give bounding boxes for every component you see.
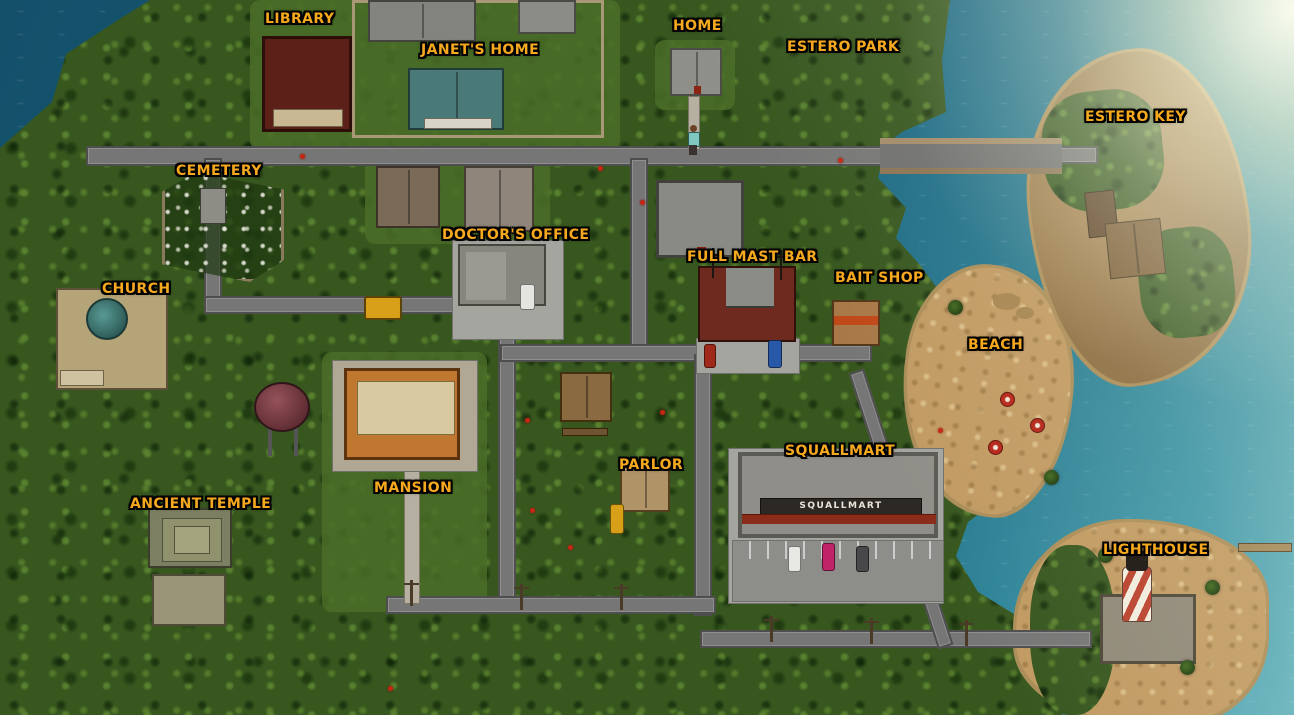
estate-north-building bbox=[368, 0, 476, 42]
lighthouse-tower[interactable] bbox=[1122, 566, 1152, 622]
telephone-pole bbox=[520, 584, 523, 610]
beach-umbrella bbox=[1030, 418, 1045, 433]
flower bbox=[838, 158, 843, 163]
estate-east-building bbox=[518, 0, 576, 34]
flower bbox=[598, 166, 603, 171]
map-label-church[interactable]: CHURCH bbox=[102, 281, 171, 297]
market-stand bbox=[560, 372, 612, 422]
islet bbox=[1016, 307, 1034, 319]
temple-terrace bbox=[152, 574, 226, 626]
map-label-parlor[interactable]: PARLOR bbox=[619, 457, 683, 473]
squallmart-building[interactable] bbox=[738, 452, 938, 538]
palm-tree bbox=[1180, 660, 1195, 675]
map-label-beach[interactable]: BEACH bbox=[968, 337, 1023, 353]
cemetery-chapel bbox=[200, 188, 226, 224]
squallmart-road-vertical bbox=[694, 354, 712, 616]
palm-tree bbox=[1205, 580, 1220, 595]
flower bbox=[300, 154, 305, 159]
janets-home-building[interactable] bbox=[408, 68, 504, 130]
telephone-pole bbox=[620, 584, 623, 610]
white-car bbox=[788, 546, 801, 572]
stone-bridge bbox=[880, 138, 1062, 174]
map-label-bait-shop[interactable]: BAIT SHOP bbox=[835, 270, 924, 286]
flower bbox=[525, 418, 530, 423]
telephone-pole bbox=[965, 620, 968, 646]
squallmart-awning bbox=[742, 514, 936, 524]
palm-tree bbox=[1044, 470, 1059, 485]
flower bbox=[530, 508, 535, 513]
map-label-janets-home[interactable]: JANET'S HOME bbox=[421, 42, 539, 58]
squallmart-parking bbox=[732, 540, 944, 602]
pink-car bbox=[822, 543, 835, 571]
palm-tree bbox=[948, 300, 963, 315]
bulldozer bbox=[364, 296, 402, 320]
benches bbox=[562, 428, 608, 436]
water-tower-tank bbox=[254, 382, 310, 432]
apartment-building bbox=[656, 180, 744, 258]
bait-shop-building[interactable] bbox=[832, 300, 880, 346]
row-house-west bbox=[376, 166, 440, 228]
telephone-pole bbox=[770, 616, 773, 642]
squallmart-storefront-sign: SQUALLMART bbox=[760, 498, 922, 515]
map-label-home[interactable]: HOME bbox=[673, 18, 722, 34]
player-character bbox=[687, 125, 699, 157]
map-label-full-mast-bar[interactable]: FULL MAST BAR bbox=[687, 249, 817, 265]
lighthouse-road bbox=[700, 630, 1092, 648]
map-label-squallmart[interactable]: SQUALLMART bbox=[785, 443, 895, 459]
telephone-pole bbox=[410, 580, 413, 606]
flower bbox=[660, 410, 665, 415]
key-shack bbox=[1105, 218, 1167, 280]
map-label-lighthouse[interactable]: LIGHTHOUSE bbox=[1103, 542, 1209, 558]
beach-umbrella bbox=[1000, 392, 1015, 407]
church-building[interactable] bbox=[56, 288, 168, 390]
mid-road-horizontal bbox=[500, 344, 872, 362]
pier bbox=[1238, 543, 1292, 552]
gray-car bbox=[856, 546, 869, 572]
map-label-ancient-temple[interactable]: ANCIENT TEMPLE bbox=[130, 496, 271, 512]
map-label-mansion[interactable]: MANSION bbox=[374, 480, 452, 496]
ancient-temple-pyramid[interactable] bbox=[148, 508, 232, 568]
map-label-doctors-office[interactable]: DOCTOR'S OFFICE bbox=[442, 227, 589, 243]
home-building[interactable] bbox=[670, 48, 722, 96]
white-car bbox=[520, 284, 535, 310]
south-road-horizontal bbox=[386, 596, 716, 614]
map-label-estero-key[interactable]: ESTERO KEY bbox=[1085, 109, 1186, 125]
red-truck bbox=[704, 344, 716, 368]
islet bbox=[993, 293, 1020, 310]
flower bbox=[568, 545, 573, 550]
map-label-estero-park[interactable]: ESTERO PARK bbox=[787, 39, 899, 55]
telephone-pole bbox=[870, 618, 873, 644]
island-map: SQUALLMART bbox=[0, 0, 1294, 715]
blue-truck bbox=[768, 340, 782, 368]
library-building[interactable] bbox=[262, 36, 352, 132]
map-label-library[interactable]: LIBRARY bbox=[265, 11, 334, 27]
yellow-truck bbox=[610, 504, 624, 534]
map-label-cemetery[interactable]: CEMETERY bbox=[176, 163, 262, 179]
flower bbox=[388, 686, 393, 691]
row-house-east bbox=[464, 166, 534, 232]
mansion-building[interactable] bbox=[344, 368, 460, 460]
church-dome bbox=[86, 298, 128, 340]
flower bbox=[640, 200, 645, 205]
beach-umbrella bbox=[988, 440, 1003, 455]
flower bbox=[938, 428, 943, 433]
apartment-road-vertical bbox=[630, 158, 648, 356]
